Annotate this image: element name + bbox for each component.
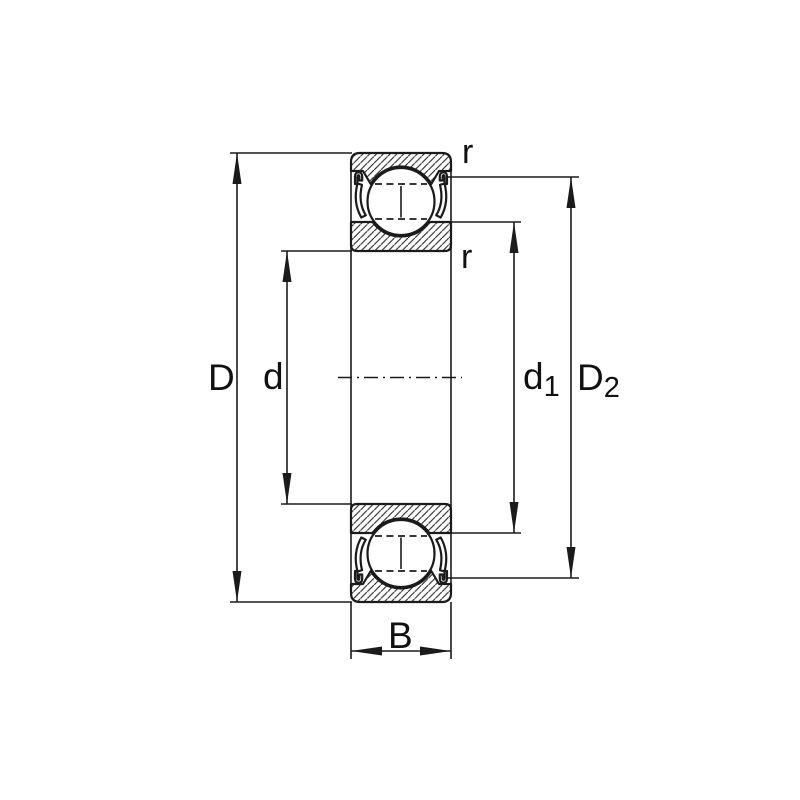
dimension-B: B [351,602,451,659]
shield-right [436,172,447,217]
label-B: B [388,615,413,656]
bearing-diagram: D d d1 D2 B r r [0,0,800,800]
label-D: D [208,357,235,398]
bearing-drawing-canvas: D d d1 D2 B r r [0,0,800,800]
label-r-outer: r [462,133,473,171]
bearing-section-bottom [351,504,451,602]
label-d: d [263,356,284,397]
shield-left [355,172,366,217]
label-r-inner: r [461,238,472,276]
bearing-section-top [351,153,451,251]
label-d1: d1 [523,356,560,403]
shield-left [355,538,366,583]
label-D2: D2 [577,357,620,404]
shield-right [436,538,447,583]
shield-anchor-hook [355,172,362,184]
